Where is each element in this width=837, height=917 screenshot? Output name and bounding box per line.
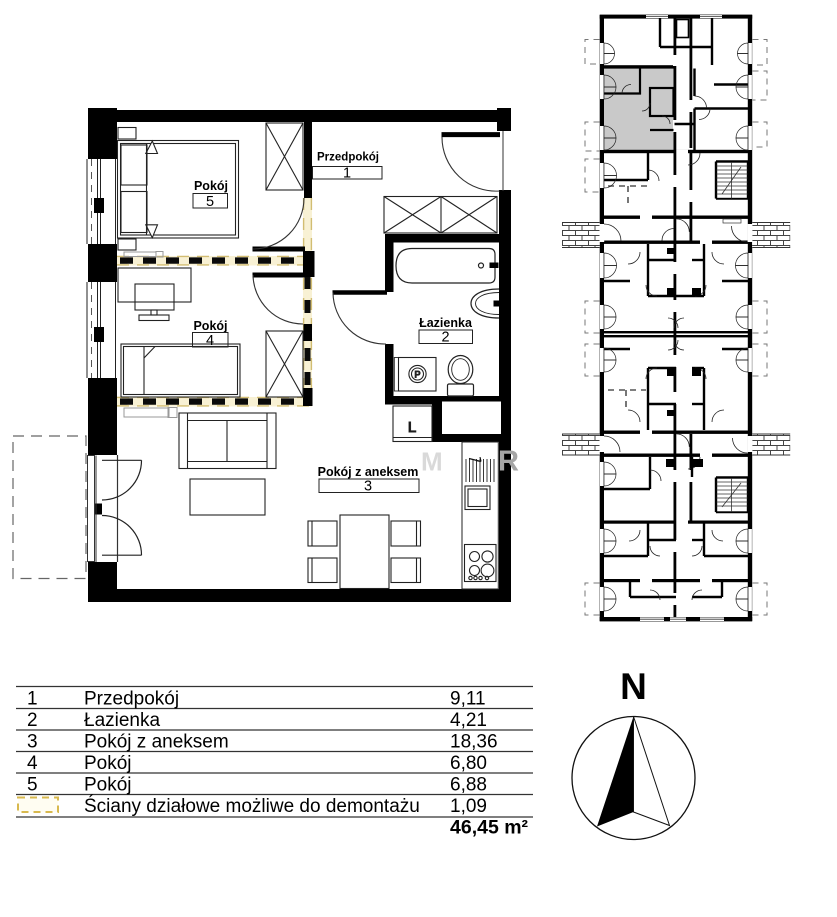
svg-text:4: 4 — [206, 333, 214, 349]
svg-text:Przedpokój: Przedpokój — [317, 152, 379, 164]
svg-text:3: 3 — [364, 479, 372, 495]
svg-text:18,36: 18,36 — [450, 732, 498, 753]
svg-text:46,45 m²: 46,45 m² — [450, 817, 529, 839]
svg-text:6,88: 6,88 — [450, 775, 487, 796]
svg-text:5: 5 — [206, 194, 214, 210]
svg-text:Pokój: Pokój — [193, 319, 227, 333]
svg-text:Pokój: Pokój — [84, 753, 132, 774]
svg-text:9,11: 9,11 — [450, 689, 486, 710]
svg-text:4: 4 — [27, 753, 38, 774]
svg-text:P: P — [414, 369, 420, 379]
svg-text:2: 2 — [441, 330, 449, 346]
svg-text:L: L — [408, 419, 416, 436]
svg-text:Pokój: Pokój — [194, 179, 228, 193]
svg-text:4,21: 4,21 — [450, 710, 487, 731]
svg-text:6,80: 6,80 — [450, 753, 487, 774]
svg-text:Łazienka: Łazienka — [419, 316, 473, 330]
svg-text:Pokój: Pokój — [84, 775, 132, 796]
svg-text:Pokój z aneksem: Pokój z aneksem — [318, 465, 419, 479]
svg-text:3: 3 — [27, 732, 38, 753]
svg-text:Pokój z aneksem: Pokój z aneksem — [84, 732, 229, 753]
svg-text:2: 2 — [27, 710, 38, 731]
svg-text:1: 1 — [343, 165, 351, 181]
svg-text:Ściany działowe możliwe do dem: Ściany działowe możliwe do demontażu — [84, 795, 420, 817]
svg-text:1,09: 1,09 — [450, 796, 487, 817]
svg-text:M: M — [421, 447, 443, 477]
svg-text:1: 1 — [27, 689, 38, 710]
svg-text:R: R — [498, 446, 519, 478]
svg-text:5: 5 — [27, 775, 38, 796]
svg-text:Łazienka: Łazienka — [84, 710, 160, 731]
svg-text:N: N — [620, 666, 647, 707]
svg-text:Przedpokój: Przedpokój — [84, 689, 179, 710]
